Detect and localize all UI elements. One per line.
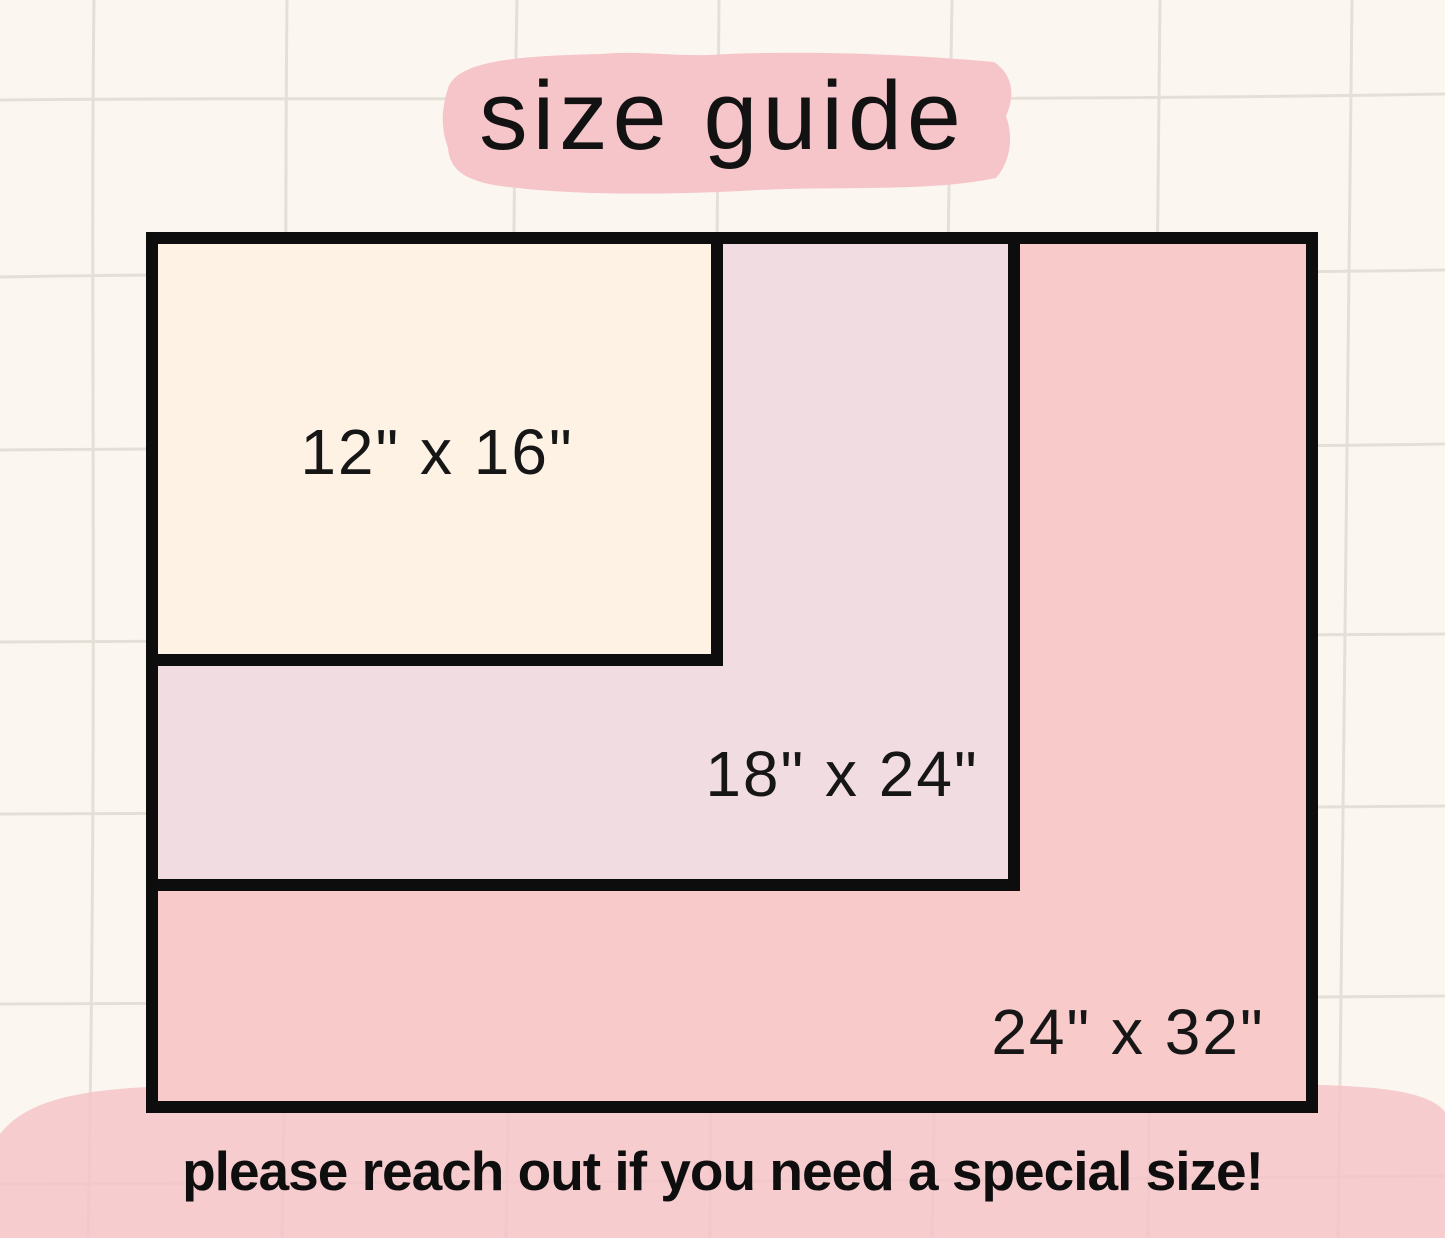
page-title: size guide bbox=[0, 62, 1445, 170]
size-guide-graphic: size guide 12" x 16" 18" x 24" 24" x 32"… bbox=[0, 0, 1445, 1238]
size-label-12x16: 12" x 16" bbox=[300, 415, 573, 489]
size-label-18x24: 18" x 24" bbox=[705, 737, 978, 811]
size-label-24x32: 24" x 32" bbox=[991, 995, 1264, 1069]
footer-note: please reach out if you need a special s… bbox=[0, 1140, 1445, 1202]
